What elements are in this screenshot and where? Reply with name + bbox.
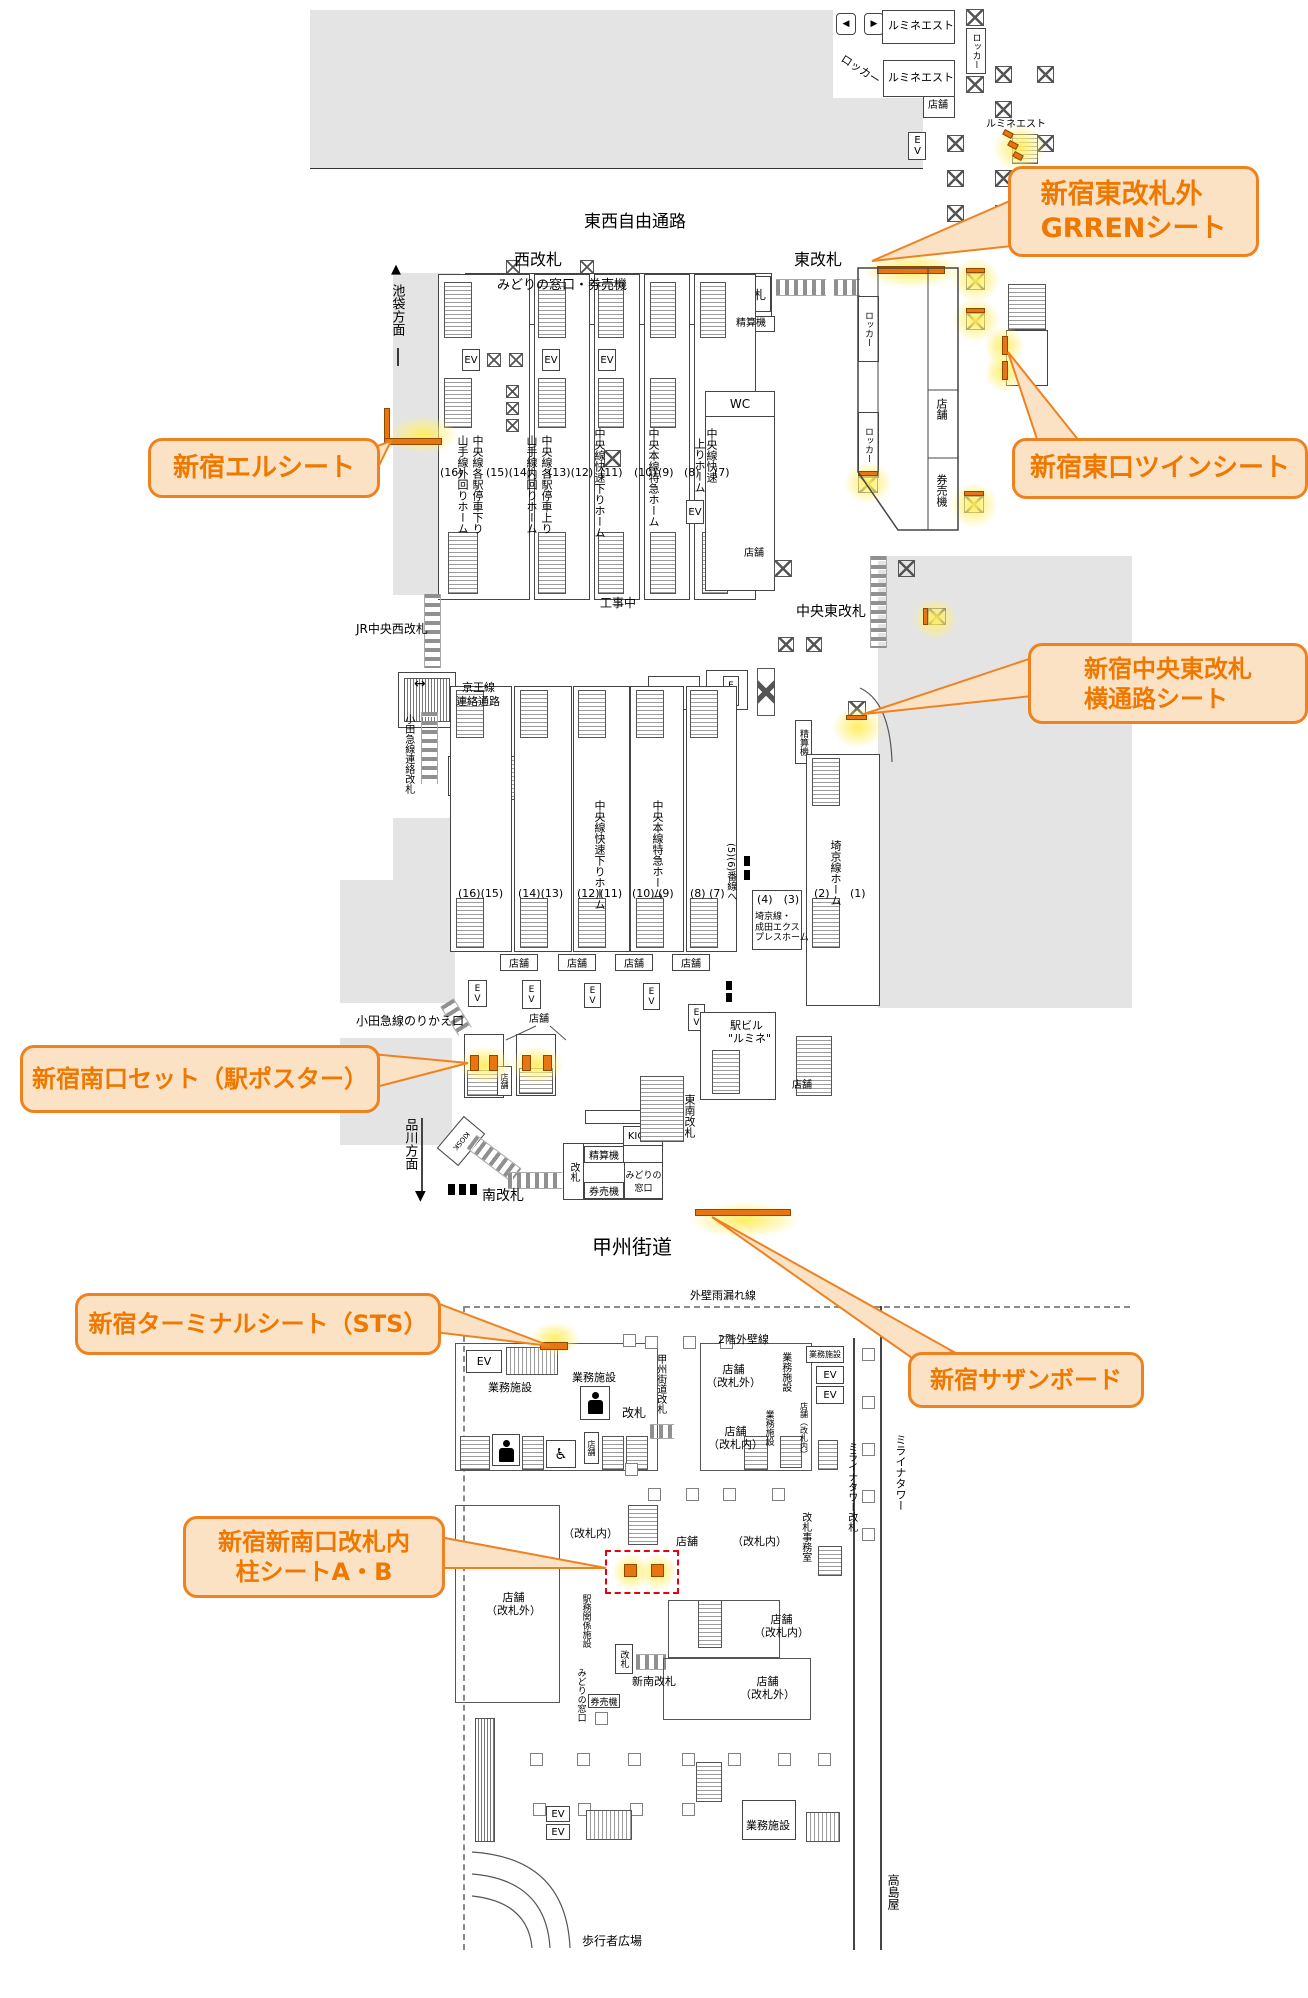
leader-green-sheet xyxy=(872,200,1012,261)
east-building-walls xyxy=(878,268,958,530)
leader-yokotsuro xyxy=(864,658,1032,714)
callout-twin-sheet: 新宿東口ツインシート xyxy=(1012,438,1308,499)
callout-green-sheet: 新宿東改札外GRRENシート xyxy=(1008,166,1259,257)
leader-twin-sheet xyxy=(1008,352,1080,442)
callout-text: 新宿エルシート xyxy=(173,452,355,485)
leader-sts xyxy=(434,1302,550,1346)
callout-text: 新宿南口セット（駅ポスター） xyxy=(32,1064,368,1094)
callout-text: 新宿サザンボード xyxy=(930,1365,1122,1395)
callout-text: GRRENシート xyxy=(1041,212,1227,246)
east-building-outline xyxy=(858,268,958,530)
leader-southern xyxy=(712,1217,954,1358)
callout-hashira: 新宿新南口改札内柱シートA・B xyxy=(183,1516,445,1598)
callout-text: 新宿中央東改札 xyxy=(1084,654,1252,684)
callout-text: 新宿東改札外 xyxy=(1041,178,1227,212)
leader-minami-set xyxy=(372,1054,468,1088)
curved-wall xyxy=(860,688,892,762)
map-overlay xyxy=(0,0,1308,1998)
callout-sts: 新宿ターミナルシート（STS） xyxy=(75,1293,441,1355)
callout-text: 新宿ターミナルシート（STS） xyxy=(89,1309,428,1339)
callout-text: 新宿東口ツインシート xyxy=(1030,452,1290,485)
callout-yokotsuro: 新宿中央東改札横通路シート xyxy=(1028,643,1308,724)
shop-pointers xyxy=(506,1026,566,1040)
callout-minami-set: 新宿南口セット（駅ポスター） xyxy=(20,1045,380,1113)
callout-text: 柱シートA・B xyxy=(218,1557,410,1587)
plaza-fan xyxy=(472,1852,570,1948)
station-map: ◀ ▶ ルミネエスト ロッカー ルミネエスト 店舗 EV ロッカー ルミネエスト… xyxy=(0,0,1308,1998)
leader-hashira xyxy=(434,1536,606,1568)
callout-southern: 新宿サザンボード xyxy=(908,1352,1144,1408)
callout-text: 横通路シート xyxy=(1084,684,1252,714)
callout-el-sheet: 新宿エルシート xyxy=(148,438,380,498)
callout-text: 新宿新南口改札内 xyxy=(218,1527,410,1557)
